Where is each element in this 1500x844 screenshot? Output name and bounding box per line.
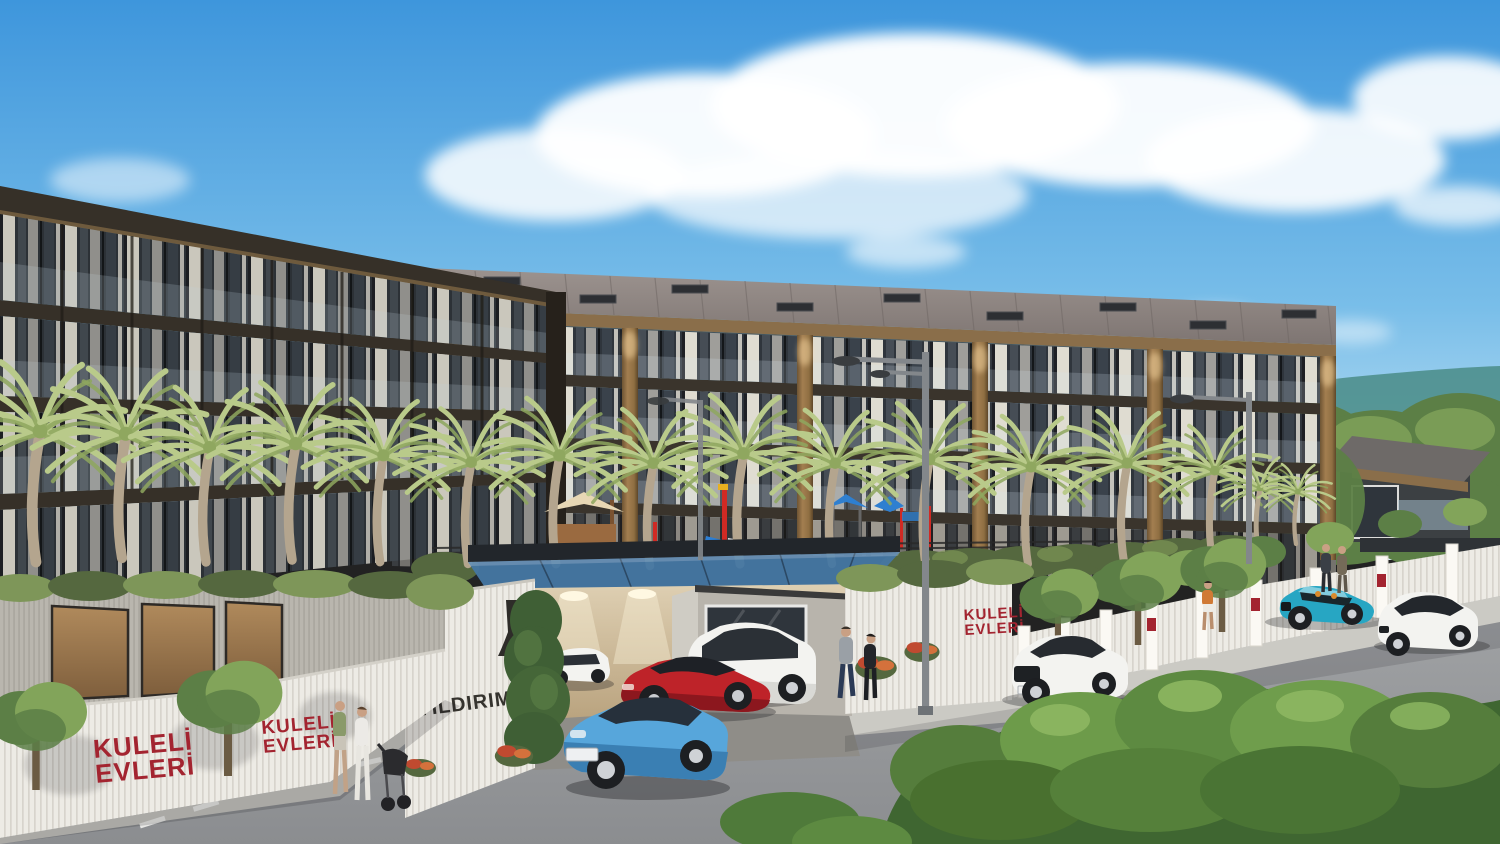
- stroller: [382, 749, 408, 776]
- brand-sign-medium: KULELİ EVLERİ: [261, 712, 339, 758]
- garage-downlight: [560, 591, 588, 601]
- brand-sign-right: KULELİ EVLERİ: [963, 604, 1025, 639]
- garage-downlight: [628, 589, 656, 599]
- conifer-tree: [504, 590, 570, 764]
- lamp-head: [1170, 395, 1194, 404]
- lamp-head: [832, 356, 860, 366]
- lamp-head: [870, 370, 890, 378]
- lamp-head: [647, 397, 669, 405]
- license-plate: [566, 748, 598, 761]
- brand-sign-large: KULELİ EVLERİ: [92, 725, 196, 788]
- architectural-render: dası YIG YILDIRIM Y KULELİ EVLE: [0, 0, 1500, 844]
- scene: dası YIG YILDIRIM Y KULELİ EVLE: [0, 0, 1500, 844]
